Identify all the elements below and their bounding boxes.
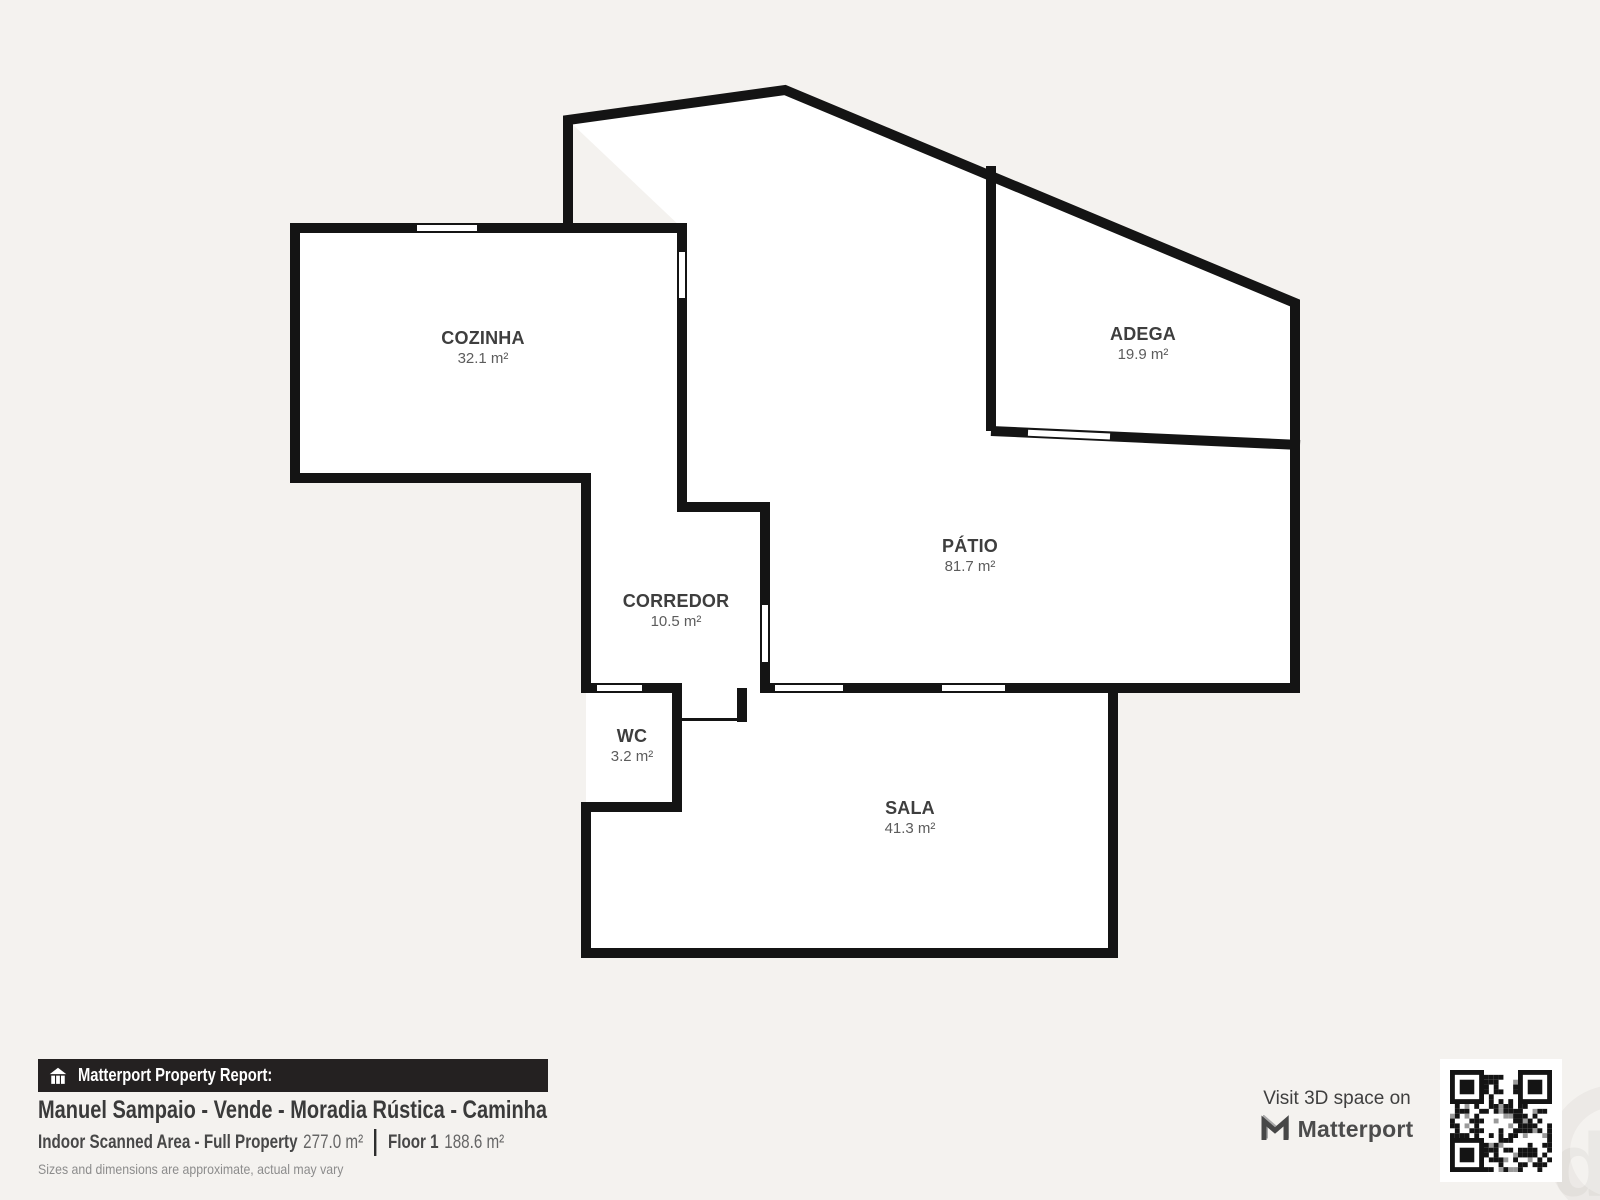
adega-window [1028,433,1110,437]
property-report-page: d [0,0,1600,1200]
matterport-logo: Matterport [1261,1115,1414,1143]
report-disclaimer: Sizes and dimensions are approximate, ac… [38,1161,343,1177]
wc-floor [586,688,677,807]
matterport-logo-text: Matterport [1298,1116,1414,1143]
floor-value: 188.6 m² [444,1132,504,1154]
report-stats: Indoor Scanned Area - Full Property 277.… [38,1129,504,1156]
report-bar: Matterport Property Report: [38,1059,548,1092]
house-icon [49,1067,67,1085]
report-title: Manuel Sampaio - Vende - Moradia Rústica… [38,1096,547,1125]
visit-3d-cta: Visit 3D space on Matterport [1212,1088,1462,1143]
floor-plan [0,0,1600,1200]
floor-label: Floor 1 [388,1132,439,1154]
visit-3d-text: Visit 3D space on [1263,1088,1411,1110]
stats-separator [374,1129,376,1156]
cozinha-floor [295,228,682,507]
matterport-logo-icon [1261,1115,1289,1143]
indoor-area-label: Indoor Scanned Area - Full Property [38,1132,298,1154]
qr-code-pattern [1450,1070,1552,1172]
report-bar-label: Matterport Property Report: [78,1065,272,1086]
adega-floor [991,171,1295,445]
indoor-area-value: 277.0 m² [303,1132,363,1154]
